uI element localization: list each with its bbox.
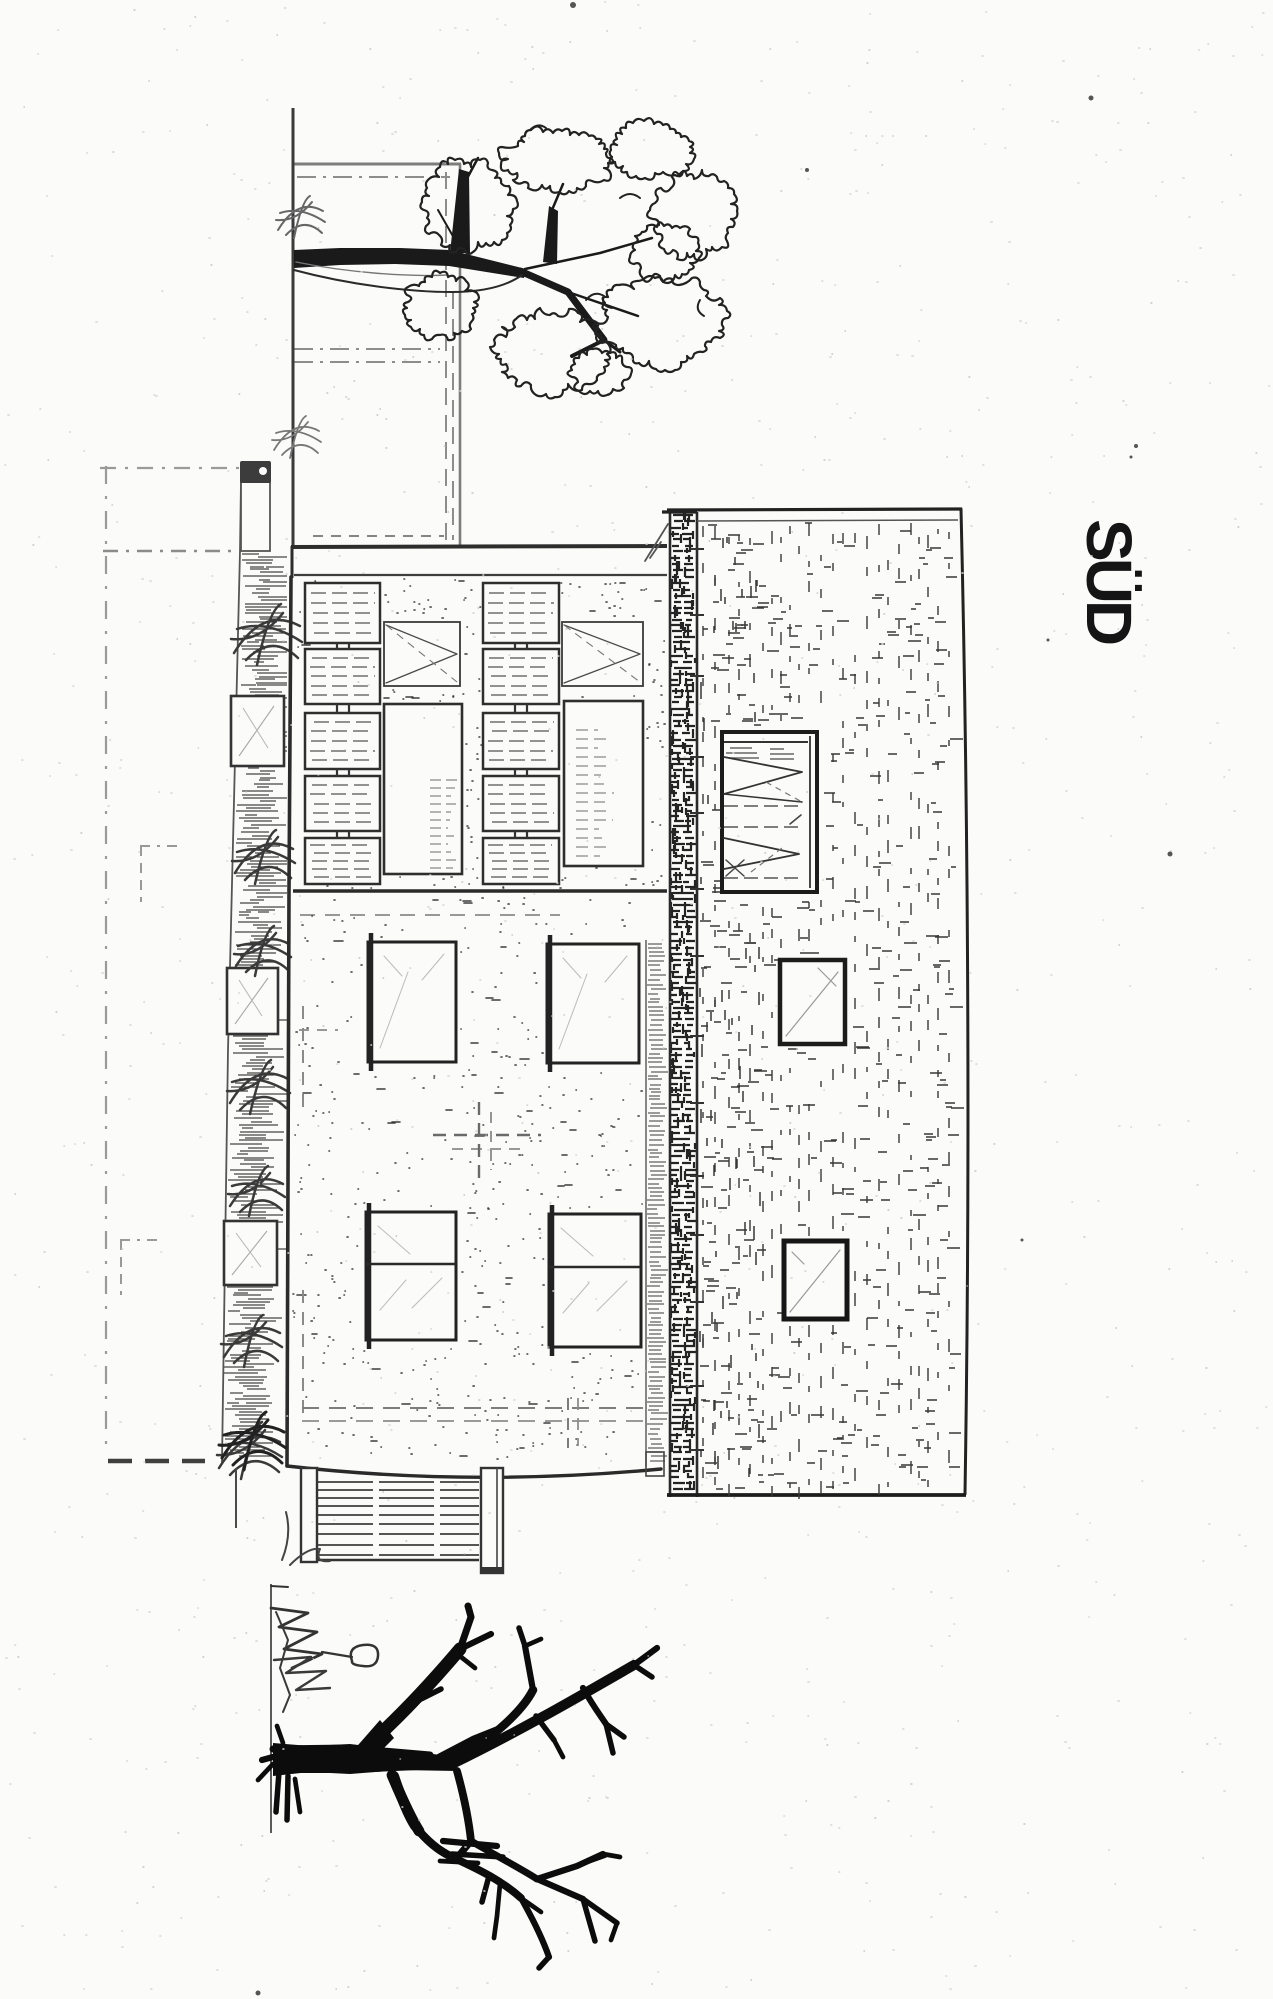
- svg-text:SÜD: SÜD: [1073, 519, 1145, 644]
